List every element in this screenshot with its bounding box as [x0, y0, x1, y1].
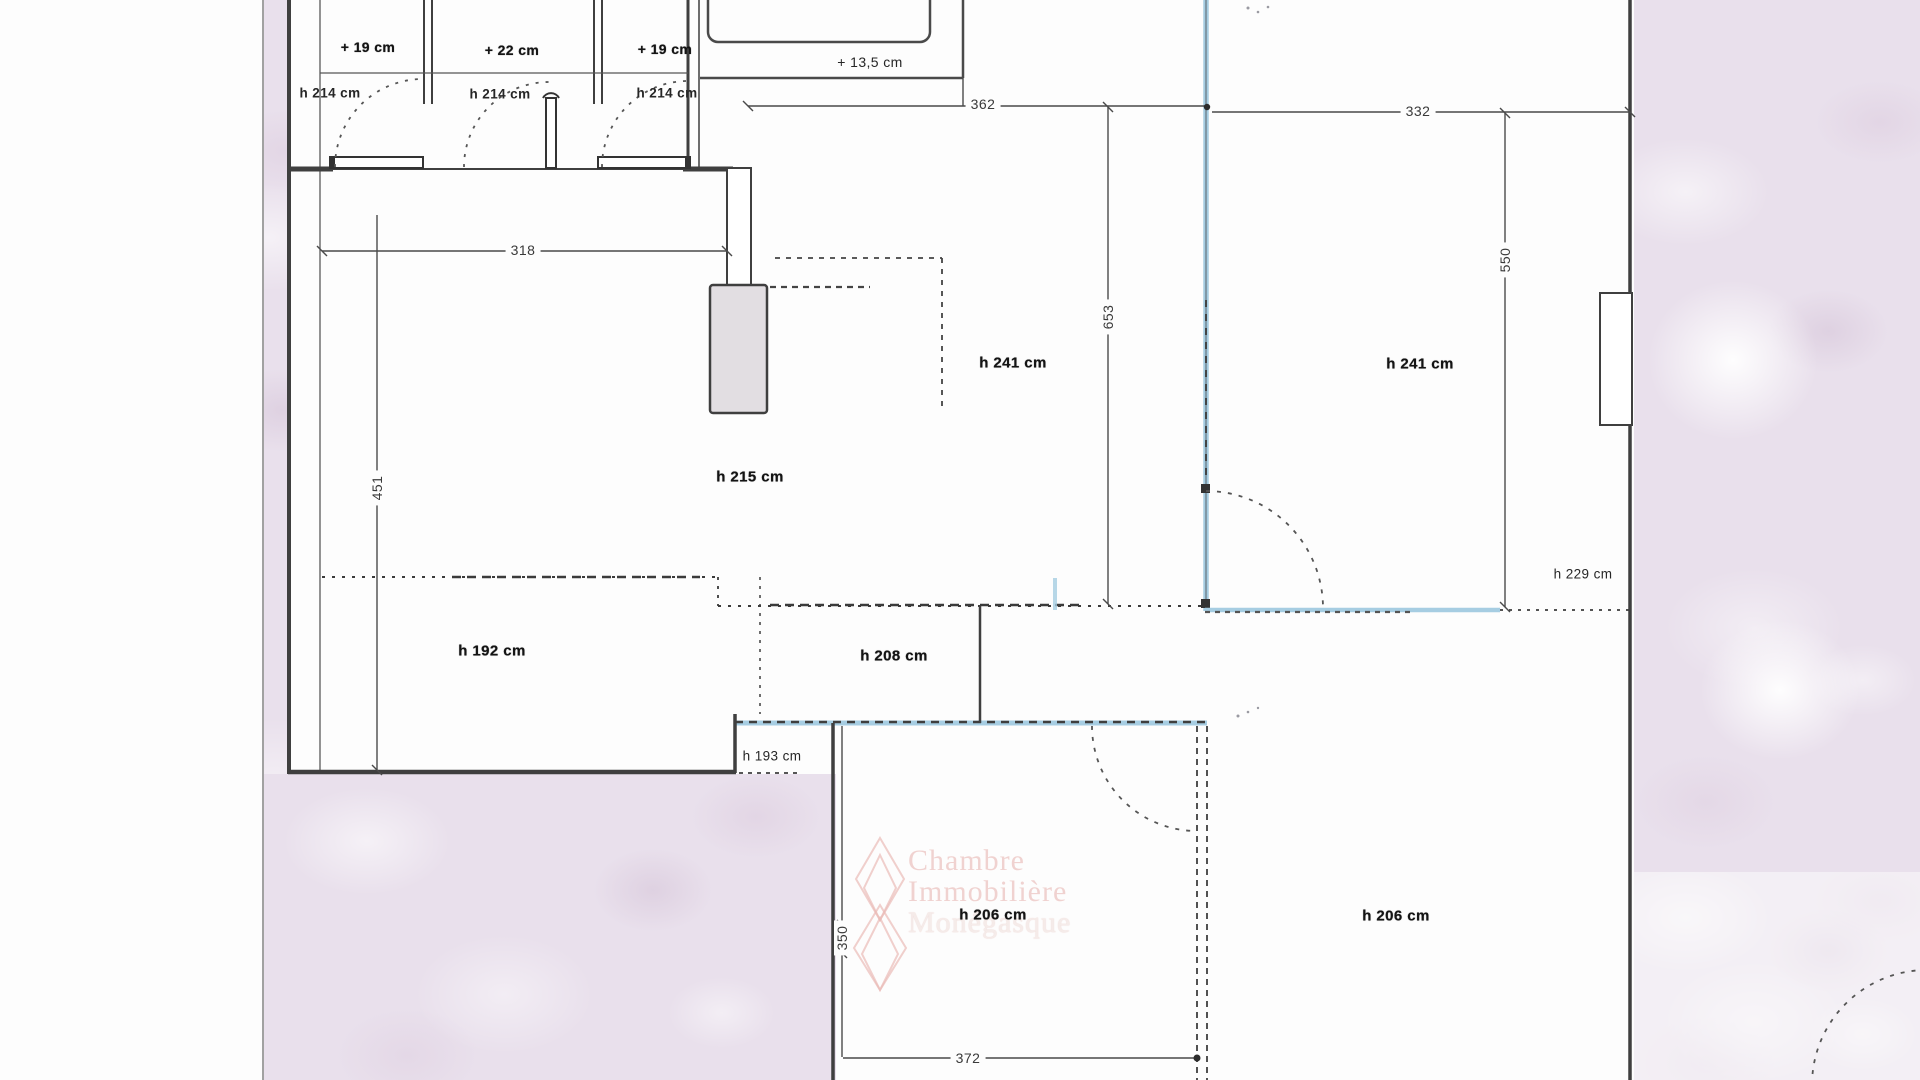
- height-h208-label: h 208 cm: [860, 648, 927, 665]
- height-h206-left-label: h 206 cm: [959, 907, 1026, 924]
- dim-332-label: 332: [1401, 103, 1436, 119]
- dim-550-label: 550: [1497, 243, 1513, 278]
- height-h241-right-label: h 241 cm: [1386, 356, 1453, 373]
- closet1-level-label: + 19 cm: [341, 39, 396, 55]
- height-h241-left-label: h 241 cm: [979, 355, 1046, 372]
- balcony-level-label: + 13,5 cm: [837, 54, 902, 70]
- door-arc-lower-room: [1092, 726, 1197, 831]
- blue-wall-low-horizontal: [735, 722, 1207, 723]
- height-h193-label: h 193 cm: [739, 749, 806, 764]
- watermark: Chambre Immobilière Monégasque: [908, 845, 1071, 938]
- dim-362-label: 362: [966, 96, 1001, 112]
- dim-350-label: 350: [834, 921, 850, 956]
- floor-plan-scan: Chambre Immobilière Monégasque + 19 cm +…: [0, 0, 1920, 1080]
- closet3-height-label: h 214 cm: [637, 86, 698, 101]
- closet3-level-label: + 19 cm: [638, 41, 693, 57]
- watermark-line2: Immobilière: [908, 876, 1071, 907]
- height-h206-right-label: h 206 cm: [1362, 908, 1429, 925]
- dim-372-label: 372: [951, 1050, 986, 1066]
- watermark-diamonds: [854, 838, 906, 990]
- height-h215-label: h 215 cm: [716, 469, 783, 486]
- dim-318-label: 318: [506, 242, 541, 258]
- height-h192-label: h 192 cm: [458, 643, 525, 660]
- dim-653-label: 653: [1100, 300, 1116, 335]
- balcony-outline: [700, 0, 963, 106]
- blue-wall-vertical: [1201, 0, 1210, 611]
- zone-separation-dotted: [322, 577, 1630, 610]
- lower-room-dashed-right: [1197, 726, 1207, 1080]
- closet2-height-label: h 214 cm: [470, 87, 531, 102]
- dashed-cupboard: [770, 258, 942, 412]
- door-arc-blue-wall: [1206, 491, 1323, 608]
- closet2-level-label: + 22 cm: [485, 42, 540, 58]
- blue-wall-mid-horizontal: [1055, 578, 1500, 612]
- dim-451-label: 451: [369, 471, 385, 506]
- door-arcs: [1092, 491, 1920, 1080]
- height-h229-label: h 229 cm: [1550, 567, 1617, 582]
- pillar: [710, 168, 767, 413]
- closet-door-leaves: [329, 93, 691, 169]
- wall-right-niche: [1600, 293, 1632, 425]
- watermark-line1: Chambre: [908, 845, 1071, 876]
- closet1-height-label: h 214 cm: [300, 86, 361, 101]
- door-arc-bottom-right: [1812, 970, 1920, 1080]
